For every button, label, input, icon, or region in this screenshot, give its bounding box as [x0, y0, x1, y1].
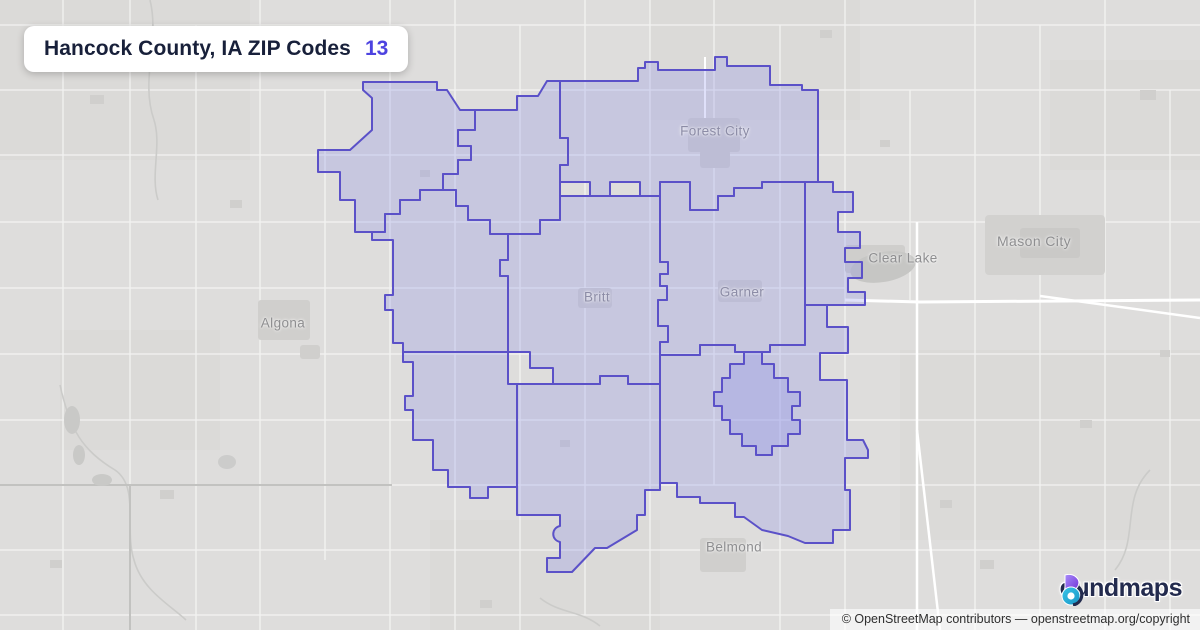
city-label-forest-city: Forest City — [680, 124, 750, 139]
city-label-algona: Algona — [261, 316, 305, 331]
city-label-clear-lake: Clear Lake — [868, 251, 937, 266]
attribution-separator: — — [1011, 612, 1030, 626]
zip-zone[interactable] — [517, 376, 660, 572]
city-label-belmond: Belmond — [706, 540, 762, 555]
title-card: Hancock County, IA ZIP Codes 13 — [24, 26, 408, 72]
page-title: Hancock County, IA ZIP Codes — [44, 37, 351, 61]
city-label-mason-city: Mason City — [997, 233, 1071, 249]
zip-zone[interactable] — [658, 182, 805, 355]
map-canvas[interactable]: Forest City Clear Lake Mason City Algona… — [0, 0, 1200, 630]
zip-zone[interactable] — [403, 352, 517, 498]
attribution-bar: © OpenStreetMap contributors — openstree… — [830, 609, 1200, 630]
city-label-garner: Garner — [720, 285, 764, 300]
osm-attribution-text: © OpenStreetMap contributors — [842, 612, 1012, 626]
boundmaps-logo: oundmaps — [1060, 574, 1182, 603]
zip-count-badge: 13 — [365, 37, 388, 61]
zip-zone[interactable] — [805, 182, 865, 305]
osm-copyright-link[interactable]: openstreetmap.org/copyright — [1031, 612, 1190, 626]
boundmaps-b-icon — [1060, 574, 1087, 606]
city-label-britt: Britt — [584, 290, 610, 305]
zip-overlay — [0, 0, 1200, 630]
